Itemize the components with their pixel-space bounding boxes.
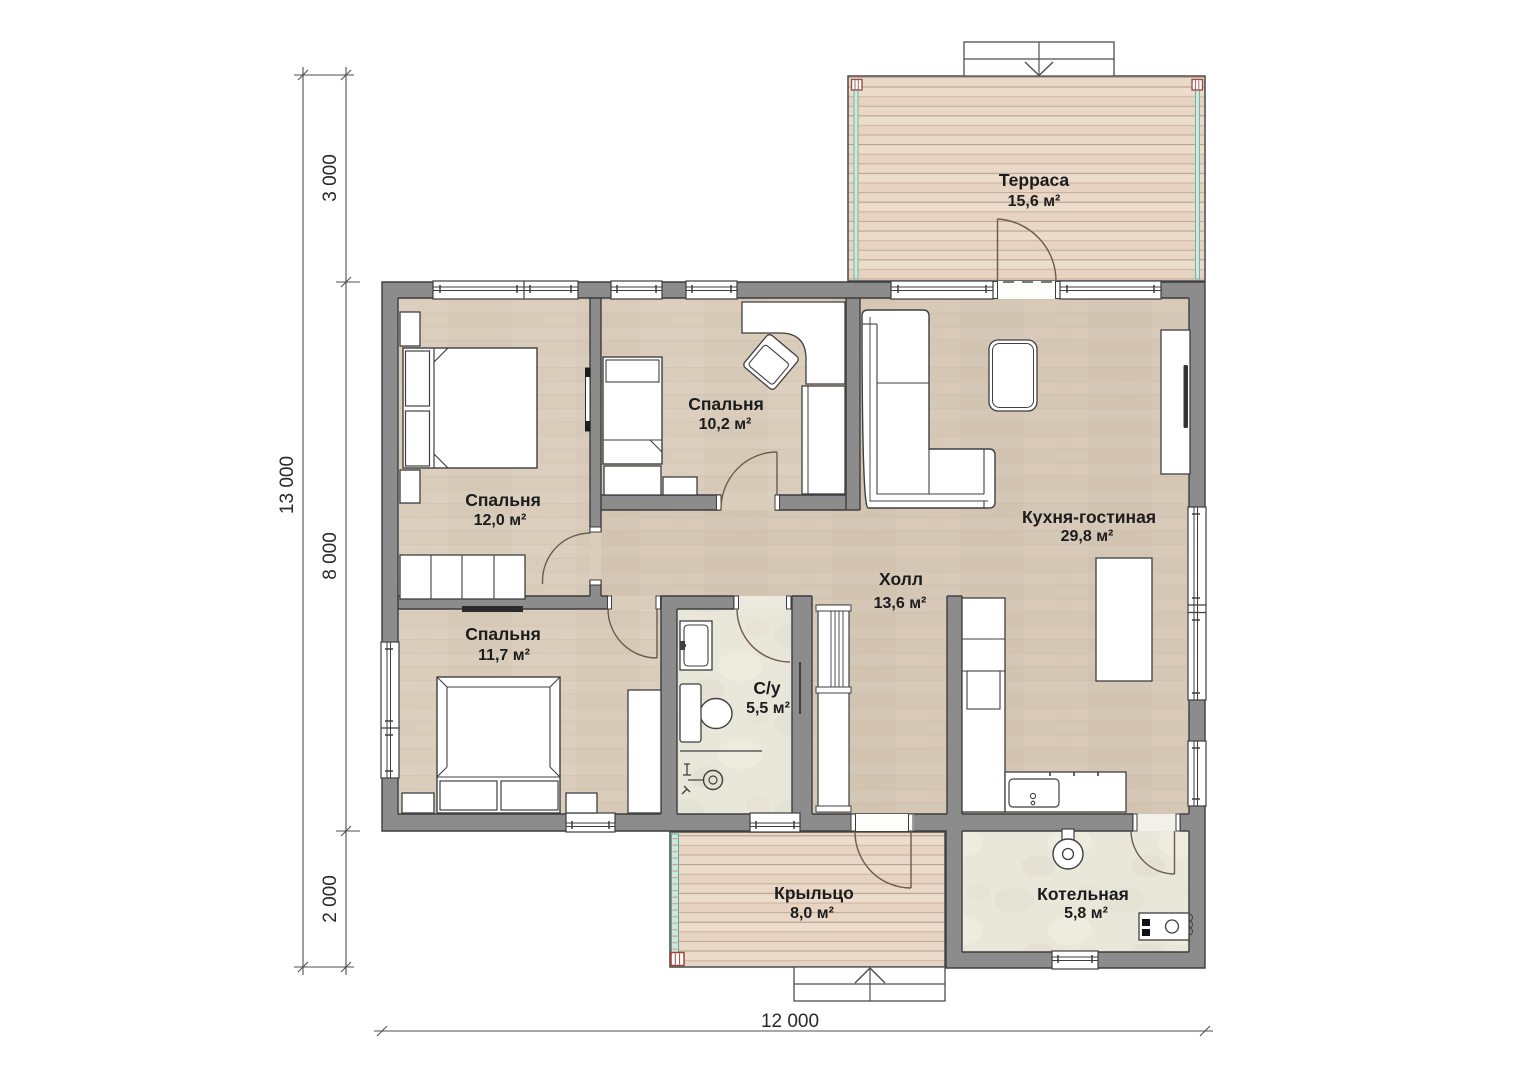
svg-text:Спальня: Спальня [465, 624, 541, 644]
svg-text:Крыльцо: Крыльцо [774, 883, 854, 903]
svg-text:5,5 м²: 5,5 м² [746, 700, 790, 717]
svg-text:Холл: Холл [879, 569, 923, 589]
svg-text:12,0 м²: 12,0 м² [474, 512, 527, 529]
svg-text:15,6 м²: 15,6 м² [1008, 193, 1061, 210]
svg-text:3 000: 3 000 [320, 154, 341, 202]
svg-text:13,6 м²: 13,6 м² [874, 595, 927, 612]
svg-text:С/у: С/у [753, 678, 781, 698]
svg-text:Кухня-гостиная: Кухня-гостиная [1022, 507, 1156, 527]
svg-text:Спальня: Спальня [465, 490, 541, 510]
svg-text:2 000: 2 000 [320, 875, 341, 923]
svg-text:Спальня: Спальня [688, 394, 764, 414]
svg-text:11,7 м²: 11,7 м² [478, 647, 530, 664]
svg-text:8 000: 8 000 [320, 532, 341, 580]
svg-text:10,2 м²: 10,2 м² [699, 416, 752, 433]
svg-text:13 000: 13 000 [277, 456, 298, 514]
svg-text:8,0 м²: 8,0 м² [790, 905, 834, 922]
svg-text:29,8 м²: 29,8 м² [1061, 528, 1114, 545]
svg-text:Котельная: Котельная [1037, 884, 1129, 904]
svg-text:12 000: 12 000 [761, 1011, 819, 1032]
svg-text:Терраса: Терраса [999, 170, 1070, 190]
svg-text:5,8 м²: 5,8 м² [1064, 905, 1108, 922]
